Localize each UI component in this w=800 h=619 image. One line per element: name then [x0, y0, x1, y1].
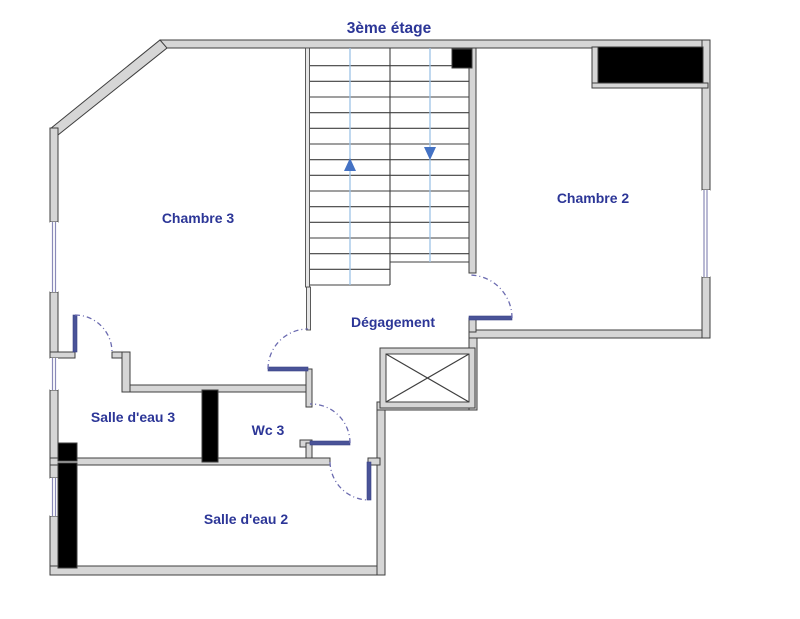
door-swing-arc [330, 462, 369, 500]
door-leaf [268, 367, 308, 371]
door-salle-eau-3 [73, 315, 112, 352]
window-chambre-3-left [50, 222, 58, 292]
wall-wc3-top [130, 385, 312, 392]
room-label-salle-eau-2: Salle d'eau 2 [204, 511, 288, 527]
floor-plan: 3ème étage Chambre 3 Chambre 2 Dégagemen… [0, 0, 800, 619]
wall-left-mid [50, 292, 58, 358]
wall-wc3-right-upper [306, 369, 312, 407]
door-wc3 [310, 404, 350, 445]
wall-salle-eau-2-top [50, 458, 330, 465]
wall-left-chambre-2 [469, 48, 476, 273]
door-leaf [469, 316, 512, 320]
wall-left-upper [50, 128, 58, 222]
duct-between-salle-eau-3-and-wc3 [202, 390, 218, 462]
door-leaf [73, 315, 77, 352]
wall-closet-bottom [592, 83, 708, 88]
door-leaf [310, 441, 350, 445]
room-labels: 3ème étage Chambre 3 Chambre 2 Dégagemen… [91, 20, 630, 527]
room-label-wc3: Wc 3 [252, 422, 285, 438]
room-label-chambre-2: Chambre 2 [557, 190, 630, 206]
room-label-degagement: Dégagement [351, 314, 435, 330]
elevator-shaft [380, 348, 475, 408]
stair-down-arrow-icon [424, 147, 436, 160]
wall-salle-eau-3-top-left [50, 352, 75, 358]
duct-salle-eau-3-left [58, 443, 77, 461]
room-label-chambre-3: Chambre 3 [162, 210, 235, 226]
door-chambre-2 [469, 275, 512, 320]
wall-right-lower [702, 277, 710, 338]
wall-salle-eau-3-corner [122, 352, 130, 392]
door-swing-arc [268, 329, 308, 369]
duct-salle-eau-2-left [58, 463, 77, 568]
floor-title: 3ème étage [347, 20, 432, 37]
door-chambre-3 [268, 329, 308, 371]
window-chambre-2-right [702, 190, 710, 277]
partition-stairs-left [306, 48, 310, 287]
window-salle-eau-2-left [50, 478, 58, 516]
wall-diagonal-top-left [50, 40, 167, 135]
window-salle-eau-3-left [50, 358, 58, 390]
door-leaf [367, 462, 371, 500]
door-swing-arc [310, 404, 350, 443]
door-swing-arc [75, 315, 112, 352]
stair-top-column [452, 49, 472, 68]
exterior-walls [50, 40, 710, 575]
room-label-salle-eau-3: Salle d'eau 3 [91, 409, 175, 425]
wall-right-salle-eau-2 [377, 407, 385, 575]
staircase [310, 48, 469, 285]
wall-bottom [50, 566, 385, 575]
partition-degagement-chambre-3 [307, 287, 311, 330]
closet-chambre-2 [598, 47, 703, 83]
door-salle-eau-2 [330, 462, 371, 500]
wall-bottom-chambre-2 [469, 330, 710, 338]
wall-closet-left [592, 47, 598, 88]
door-swing-arc [470, 275, 512, 318]
